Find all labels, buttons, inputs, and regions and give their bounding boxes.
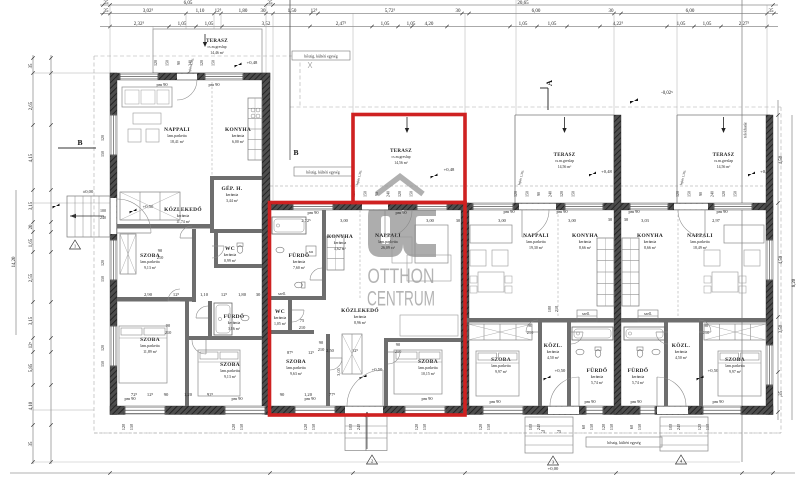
svg-text:75: 75 [557, 429, 561, 434]
svg-text:30: 30 [261, 9, 267, 14]
svg-text:100: 100 [528, 424, 533, 430]
svg-text:100: 100 [348, 424, 353, 430]
svg-text:KONYHA: KONYHA [637, 233, 663, 239]
svg-text:150: 150 [165, 60, 170, 66]
svg-text:4,22⁵: 4,22⁵ [613, 21, 624, 27]
svg-text:1,65: 1,65 [29, 238, 34, 247]
svg-text:1,05: 1,05 [381, 22, 390, 27]
svg-text:150: 150 [525, 191, 530, 197]
svg-text:pm 90: pm 90 [124, 396, 136, 401]
svg-text:120: 120 [559, 191, 564, 197]
svg-text:240: 240 [676, 424, 681, 430]
svg-text:240: 240 [356, 424, 361, 430]
svg-text:6,00: 6,00 [532, 9, 541, 14]
svg-text:2,65: 2,65 [29, 101, 34, 110]
svg-text:lam.parketta: lam.parketta [167, 134, 187, 138]
svg-text:1,05: 1,05 [205, 22, 214, 27]
svg-text:pm 90: pm 90 [208, 82, 220, 87]
svg-text:kerámia: kerámia [675, 350, 688, 354]
svg-text:OTTHON: OTTHON [368, 264, 435, 288]
svg-text:3,15: 3,15 [29, 316, 34, 325]
svg-text:90: 90 [698, 192, 703, 196]
svg-text:210: 210 [299, 325, 306, 330]
svg-text:KÖZL.: KÖZL. [544, 342, 563, 349]
svg-text:SZOBA: SZOBA [220, 362, 240, 368]
svg-text:210: 210 [165, 330, 172, 335]
svg-text:pm 90: pm 90 [630, 399, 642, 404]
svg-text:150: 150 [422, 424, 427, 430]
svg-text:12⁵: 12⁵ [311, 8, 318, 14]
svg-text:60: 60 [629, 425, 634, 429]
svg-text:lam.parketta: lam.parketta [526, 240, 546, 244]
svg-text:3,15: 3,15 [29, 201, 34, 210]
svg-text:120: 120 [675, 191, 680, 197]
svg-text:12⁵: 12⁵ [215, 8, 222, 14]
svg-text:1,05: 1,05 [703, 22, 712, 27]
svg-text:FÜRDŐ: FÜRDŐ [628, 366, 649, 374]
svg-text:KONYHA: KONYHA [225, 127, 251, 133]
svg-text:2,27⁵: 2,27⁵ [739, 21, 750, 27]
svg-text:cs.m.greslap: cs.m.greslap [555, 159, 574, 163]
svg-text:12⁵: 12⁵ [173, 292, 180, 297]
svg-text:150: 150 [409, 191, 414, 197]
svg-text:120: 120 [231, 424, 236, 430]
svg-text:14,20: 14,20 [12, 256, 17, 267]
svg-text:150: 150 [211, 60, 216, 66]
svg-text:FÜRDŐ: FÜRDŐ [587, 366, 608, 374]
svg-text:,35: ,35 [779, 390, 784, 397]
svg-text:30: 30 [609, 9, 615, 14]
svg-text:lam.parketta: lam.parketta [418, 366, 438, 370]
svg-text:35: 35 [29, 63, 34, 68]
svg-text:KONYHA: KONYHA [572, 233, 598, 239]
svg-text:2,55: 2,55 [29, 273, 34, 282]
svg-text:4,50: 4,50 [779, 255, 784, 264]
svg-text:KÖZLEKEDŐ: KÖZLEKEDŐ [164, 205, 202, 213]
svg-text:150: 150 [129, 424, 134, 430]
svg-text:120: 120 [414, 424, 419, 430]
svg-text:120: 120 [153, 60, 158, 66]
svg-text:2,32⁵: 2,32⁵ [134, 21, 145, 27]
svg-text:120: 120 [100, 260, 105, 266]
svg-text:150: 150 [705, 424, 710, 430]
svg-text:12⁵: 12⁵ [147, 392, 154, 397]
svg-text:lam.parketta: lam.parketta [725, 364, 745, 368]
svg-text:pm 90: pm 90 [307, 210, 319, 215]
svg-text:WC: WC [225, 246, 235, 252]
svg-text:90: 90 [164, 392, 169, 397]
svg-text:kerámia: kerámia [632, 375, 645, 379]
svg-text:30: 30 [456, 9, 462, 14]
svg-text:GÉP. H.: GÉP. H. [222, 184, 243, 192]
svg-text:2,47⁵: 2,47⁵ [336, 21, 347, 27]
svg-text:3,52: 3,52 [262, 22, 271, 27]
svg-text:cs.m.greslap: cs.m.greslap [208, 45, 227, 49]
svg-text:100: 100 [100, 208, 106, 213]
svg-text:pm 90: pm 90 [712, 399, 724, 404]
svg-text:1,05: 1,05 [178, 22, 187, 27]
svg-text:100: 100 [668, 424, 673, 430]
svg-text:1,50: 1,50 [288, 9, 297, 14]
svg-text:35: 35 [268, 1, 274, 6]
svg-text:kerámia: kerámia [547, 350, 560, 354]
svg-text:120: 120 [100, 135, 105, 141]
svg-text:6,00: 6,00 [686, 9, 695, 14]
svg-text:cs.m.greslap: cs.m.greslap [714, 159, 733, 163]
svg-text:35: 35 [769, 9, 775, 14]
svg-text:hőszig. kültéri egység: hőszig. kültéri egység [607, 441, 640, 445]
svg-text:240: 240 [710, 191, 715, 197]
svg-text:4,50: 4,50 [779, 155, 784, 164]
svg-text:kerámia: kerámia [274, 316, 287, 320]
svg-text:lam.parketta: lam.parketta [220, 369, 240, 373]
svg-text:kerámia: kerámia [228, 321, 241, 325]
svg-text:kerámia: kerámia [354, 315, 367, 319]
svg-text:kerámia: kerámia [644, 240, 657, 244]
svg-text:B: B [293, 148, 298, 157]
svg-text:1,05: 1,05 [677, 22, 686, 27]
svg-text:150: 150 [589, 424, 594, 430]
svg-text:35: 35 [29, 441, 34, 446]
svg-text:12⁵: 12⁵ [28, 341, 34, 348]
svg-text:TERASZ: TERASZ [713, 153, 735, 158]
svg-text:szell.: szell. [582, 312, 590, 316]
svg-text:210: 210 [554, 306, 559, 312]
svg-text:NAPPALI: NAPPALI [523, 233, 549, 239]
svg-text:pm 90: pm 90 [304, 396, 316, 401]
svg-text:87⁵: 87⁵ [287, 350, 293, 355]
svg-text:lam.parketta: lam.parketta [491, 364, 511, 368]
svg-text:pm 90: pm 90 [489, 399, 501, 404]
svg-text:240: 240 [548, 191, 553, 197]
svg-text:telekhatár: telekhatár [743, 121, 748, 137]
svg-text:pm 90: pm 90 [395, 210, 407, 215]
svg-text:150: 150 [363, 191, 368, 197]
svg-text:4,10: 4,10 [29, 401, 34, 410]
svg-text:NAPPALI: NAPPALI [375, 233, 401, 239]
svg-text:75: 75 [541, 429, 545, 434]
svg-text:120: 120 [697, 424, 702, 430]
svg-text:kerámia: kerámia [226, 193, 239, 197]
svg-text:NAPPALI: NAPPALI [164, 127, 190, 133]
svg-text:150: 150 [100, 151, 105, 157]
svg-text:120: 120 [303, 424, 308, 430]
svg-text:4,20: 4,20 [425, 22, 434, 27]
svg-text:210: 210 [157, 255, 164, 260]
svg-text:pm 90: pm 90 [421, 396, 433, 401]
svg-text:120: 120 [513, 191, 518, 197]
svg-text:210: 210 [318, 347, 325, 352]
svg-text:120: 120 [397, 191, 402, 197]
svg-text:kerámia: kerámia [177, 214, 190, 218]
svg-text:TERASZ: TERASZ [554, 153, 576, 158]
svg-text:kerámia: kerámia [591, 375, 604, 379]
svg-text:120: 120 [100, 345, 105, 351]
svg-text:150: 150 [486, 424, 491, 430]
svg-text:cs.m.greslap: cs.m.greslap [392, 155, 411, 159]
svg-text:120: 120 [721, 191, 726, 197]
svg-text:150: 150 [637, 424, 642, 430]
svg-text:150: 150 [100, 361, 105, 367]
svg-text:35: 35 [104, 1, 110, 6]
svg-text:WC: WC [275, 309, 285, 315]
svg-text:120: 120 [199, 60, 204, 66]
svg-text:TERASZ: TERASZ [390, 149, 412, 154]
svg-text:3,02⁵: 3,02⁵ [143, 8, 154, 14]
svg-text:SZOBA: SZOBA [286, 359, 306, 365]
svg-text:240: 240 [188, 60, 193, 66]
svg-text:240: 240 [386, 191, 391, 197]
svg-text:pm 90: pm 90 [231, 396, 243, 401]
svg-text:CENTRUM: CENTRUM [367, 287, 435, 311]
svg-text:120: 120 [121, 424, 126, 430]
svg-text:kerámia: kerámia [224, 253, 237, 257]
svg-text:30: 30 [256, 292, 261, 297]
svg-text:KÖZLEKEDŐ: KÖZLEKEDŐ [341, 306, 379, 314]
svg-text:90: 90 [536, 192, 541, 196]
svg-text:pm 90: pm 90 [584, 399, 596, 404]
svg-text:120: 120 [601, 424, 606, 430]
svg-text:KONYHA: KONYHA [327, 234, 353, 240]
svg-text:lam.parketta: lam.parketta [286, 366, 306, 370]
svg-text:hőszig. kültéri egység: hőszig. kültéri egység [306, 171, 339, 175]
svg-text:szell.: szell. [278, 292, 286, 296]
svg-text:150: 150 [609, 424, 614, 430]
svg-text:-0,02⁵: -0,02⁵ [661, 90, 673, 96]
svg-text:1,05: 1,05 [407, 22, 416, 27]
svg-text:150: 150 [733, 191, 738, 197]
svg-text:150: 150 [100, 276, 105, 282]
svg-text:100: 100 [547, 306, 552, 312]
svg-text:90: 90 [176, 61, 181, 65]
svg-text:szell.: szell. [644, 312, 652, 316]
svg-text:lam.parketta: lam.parketta [140, 344, 160, 348]
svg-text:NAPPALI: NAPPALI [687, 233, 713, 239]
svg-text:4,15: 4,15 [29, 153, 34, 162]
svg-text:lam.parketta: lam.parketta [378, 240, 398, 244]
svg-text:35: 35 [104, 9, 110, 14]
svg-text:kerámia: kerámia [293, 260, 306, 264]
svg-text:A: A [544, 79, 554, 86]
svg-text:77⁵: 77⁵ [329, 392, 336, 397]
svg-text:TERASZ: TERASZ [206, 39, 228, 44]
svg-text:M6: M6 [309, 250, 314, 254]
svg-text:kerámia: kerámia [579, 240, 592, 244]
svg-text:3,50: 3,50 [779, 324, 784, 333]
svg-text:B: B [77, 138, 82, 147]
svg-text:120: 120 [478, 424, 483, 430]
svg-text:hőszig. kültéri egység: hőszig. kültéri egység [304, 55, 337, 59]
svg-text:150: 150 [239, 424, 244, 430]
svg-text:150: 150 [571, 191, 576, 197]
svg-text:1,80: 1,80 [239, 9, 248, 14]
svg-text:1,05: 1,05 [548, 22, 557, 27]
svg-text:kerámia: kerámia [232, 134, 245, 138]
svg-text:8,20: 8,20 [792, 278, 797, 287]
svg-text:12⁵: 12⁵ [221, 292, 228, 297]
svg-text:lam.parketta: lam.parketta [690, 240, 710, 244]
svg-text:5,85: 5,85 [29, 363, 34, 372]
svg-text:20: 20 [29, 224, 34, 229]
svg-text:5,72⁵: 5,72⁵ [385, 8, 396, 14]
svg-text:20,65: 20,65 [517, 1, 529, 6]
svg-text:KÖZL.: KÖZL. [672, 342, 691, 349]
svg-text:210: 210 [527, 330, 534, 335]
svg-text:lam.parketta: lam.parketta [140, 260, 160, 264]
svg-text:90: 90 [280, 392, 285, 397]
svg-text:60: 60 [581, 425, 586, 429]
svg-text:240: 240 [100, 215, 106, 220]
svg-text:90: 90 [374, 192, 379, 196]
svg-text:12⁵: 12⁵ [308, 350, 314, 355]
svg-text:pm 90: pm 90 [156, 82, 168, 87]
svg-text:6,05: 6,05 [184, 1, 193, 6]
svg-text:1,10: 1,10 [196, 9, 205, 14]
svg-text:150: 150 [311, 424, 316, 430]
svg-text:150: 150 [687, 191, 692, 197]
svg-text:1,05: 1,05 [519, 22, 528, 27]
